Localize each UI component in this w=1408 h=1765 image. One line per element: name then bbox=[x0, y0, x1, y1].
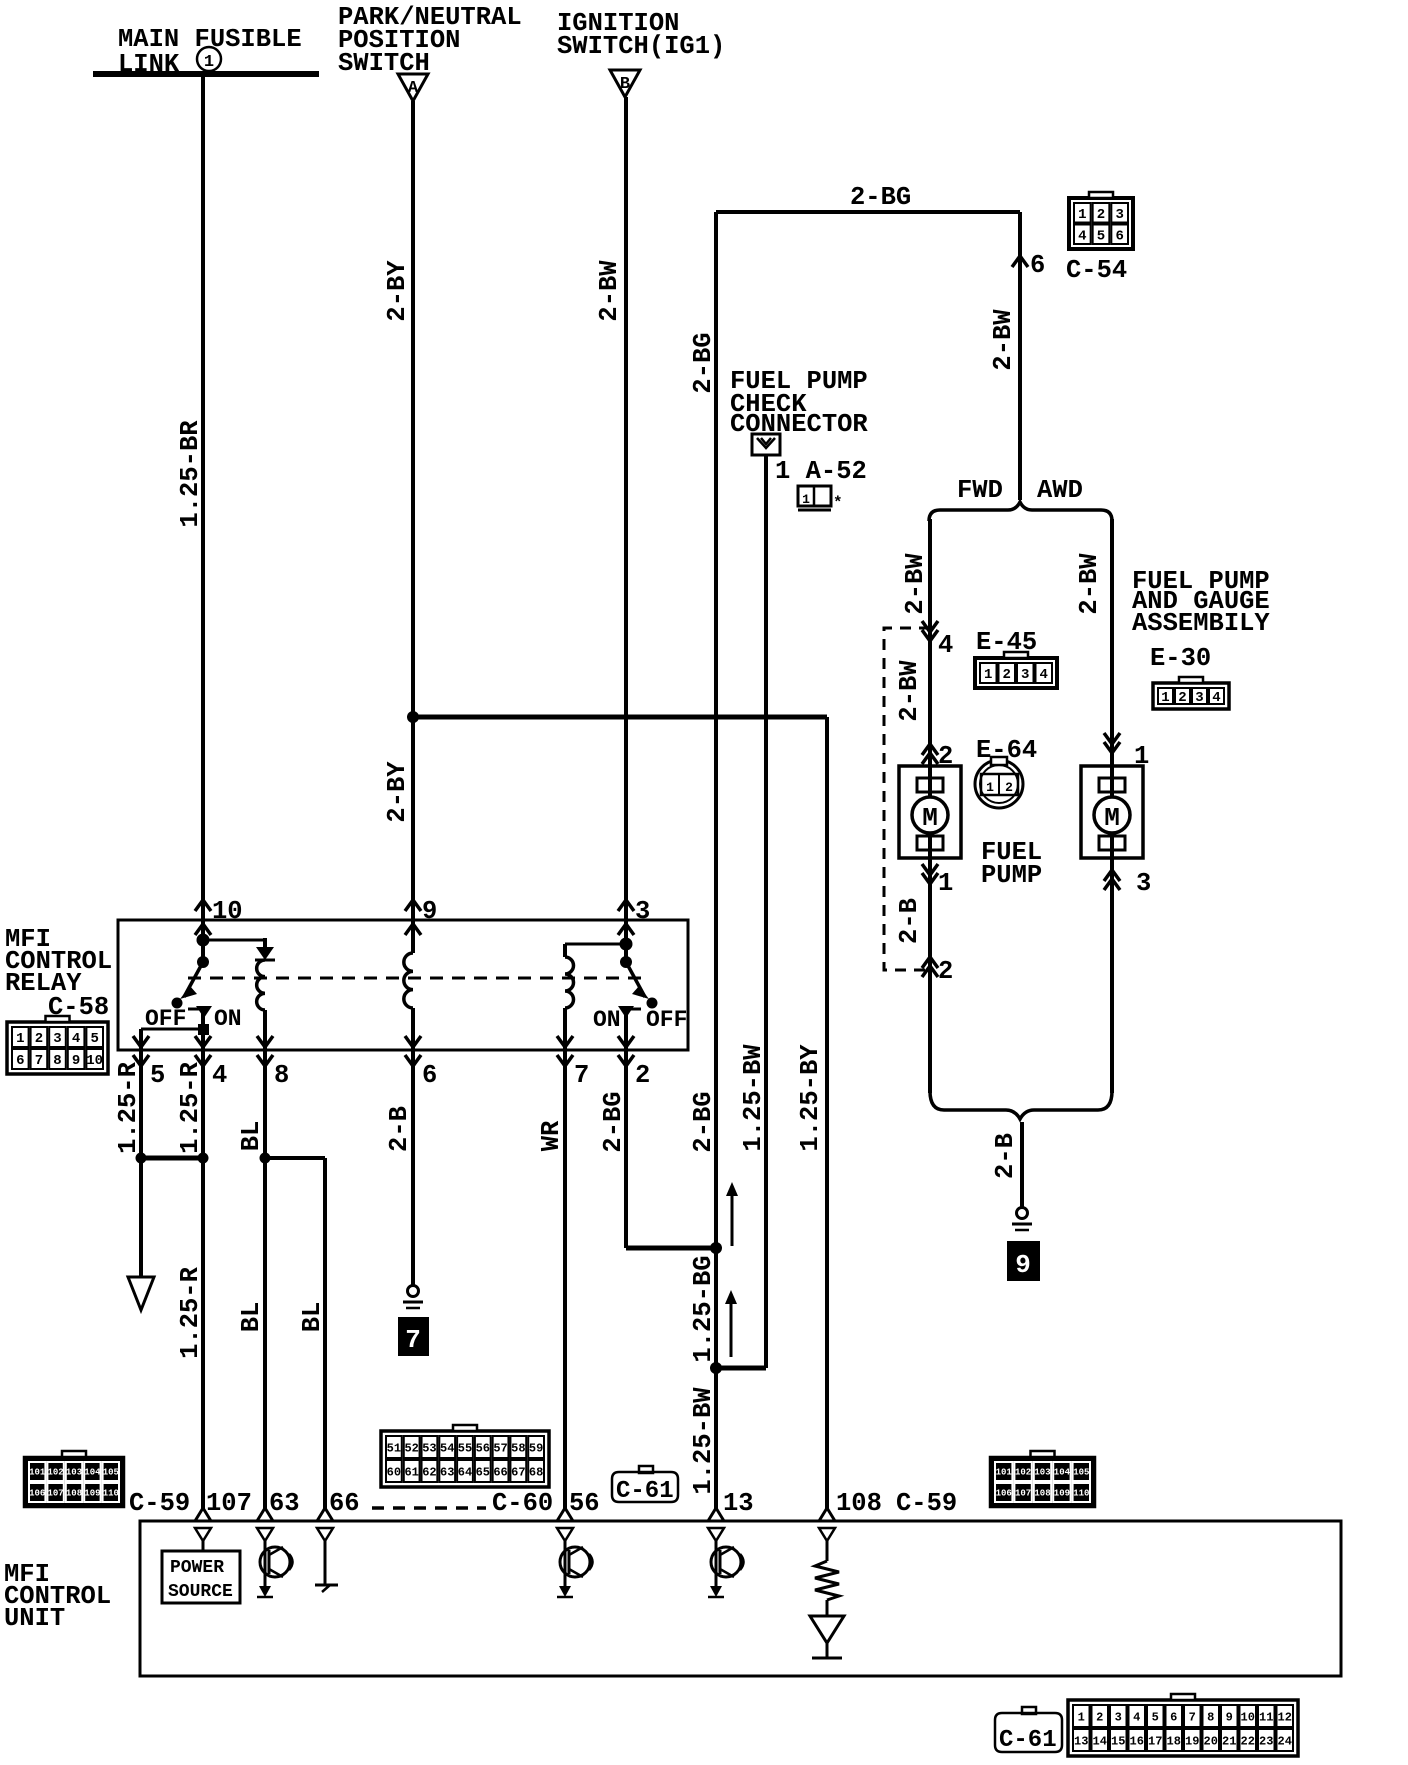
svg-text:105: 105 bbox=[1073, 1468, 1089, 1478]
svg-text:10: 10 bbox=[212, 897, 243, 926]
svg-text:2: 2 bbox=[635, 1061, 650, 1090]
svg-text:PUMP: PUMP bbox=[981, 861, 1042, 890]
svg-text:C-54: C-54 bbox=[1066, 256, 1127, 285]
svg-text:102: 102 bbox=[1015, 1468, 1031, 1478]
svg-text:12: 12 bbox=[1278, 1710, 1292, 1724]
svg-text:1: 1 bbox=[802, 492, 810, 507]
svg-text:2-BY: 2-BY bbox=[383, 260, 412, 322]
svg-text:108: 108 bbox=[836, 1489, 882, 1518]
svg-text:4: 4 bbox=[938, 631, 953, 660]
svg-text:6: 6 bbox=[1170, 1710, 1177, 1724]
svg-text:3: 3 bbox=[1195, 690, 1203, 706]
svg-text:1.25-R: 1.25-R bbox=[114, 1061, 143, 1154]
svg-text:53: 53 bbox=[422, 1441, 436, 1455]
svg-text:1.25-BW: 1.25-BW bbox=[739, 1044, 768, 1152]
svg-text:103: 103 bbox=[1034, 1468, 1050, 1478]
svg-text:23: 23 bbox=[1259, 1734, 1273, 1748]
svg-text:ASSEMBILY: ASSEMBILY bbox=[1132, 609, 1270, 638]
svg-text:2: 2 bbox=[1005, 780, 1013, 795]
svg-text:9: 9 bbox=[1015, 1250, 1031, 1280]
svg-text:7: 7 bbox=[574, 1061, 589, 1090]
svg-text:ON: ON bbox=[593, 1007, 621, 1033]
svg-text:57: 57 bbox=[493, 1441, 507, 1455]
svg-text:67: 67 bbox=[511, 1465, 525, 1479]
svg-text:C-59: C-59 bbox=[129, 1489, 190, 1518]
svg-text:66: 66 bbox=[329, 1489, 360, 1518]
svg-text:1: 1 bbox=[1078, 207, 1086, 223]
svg-text:2: 2 bbox=[1003, 667, 1011, 683]
svg-text:5: 5 bbox=[1097, 228, 1105, 244]
svg-text:3: 3 bbox=[635, 897, 650, 926]
svg-text:BL: BL bbox=[298, 1302, 327, 1333]
svg-text:101: 101 bbox=[29, 1468, 46, 1478]
svg-text:64: 64 bbox=[458, 1465, 472, 1479]
svg-text:1: 1 bbox=[16, 1031, 24, 1047]
svg-text:20: 20 bbox=[1204, 1734, 1218, 1748]
svg-text:3: 3 bbox=[1021, 667, 1029, 683]
svg-text:2-B: 2-B bbox=[991, 1133, 1020, 1179]
svg-text:5: 5 bbox=[150, 1061, 165, 1090]
svg-text:2-B: 2-B bbox=[385, 1106, 414, 1152]
svg-text:7: 7 bbox=[1189, 1710, 1196, 1724]
svg-text:6: 6 bbox=[422, 1061, 437, 1090]
svg-text:C-60: C-60 bbox=[492, 1489, 553, 1518]
svg-text:1.25-BR: 1.25-BR bbox=[176, 420, 205, 528]
svg-text:62: 62 bbox=[422, 1465, 436, 1479]
svg-text:2-BW: 2-BW bbox=[895, 660, 924, 722]
svg-text:2-BW: 2-BW bbox=[989, 309, 1018, 371]
svg-text:ON: ON bbox=[214, 1006, 242, 1032]
svg-text:58: 58 bbox=[511, 1441, 525, 1455]
svg-text:2-BG: 2-BG bbox=[689, 332, 718, 393]
svg-text:108: 108 bbox=[66, 1489, 82, 1499]
svg-text:6: 6 bbox=[16, 1053, 24, 1069]
svg-text:60: 60 bbox=[387, 1465, 401, 1479]
svg-text:21: 21 bbox=[1222, 1734, 1236, 1748]
svg-text:B: B bbox=[620, 75, 630, 94]
svg-text:55: 55 bbox=[458, 1441, 472, 1455]
svg-text:BL: BL bbox=[237, 1302, 266, 1333]
svg-text:3: 3 bbox=[1136, 869, 1151, 898]
svg-text:5: 5 bbox=[1152, 1710, 1159, 1724]
svg-text:2-BG: 2-BG bbox=[689, 1091, 718, 1152]
svg-text:4: 4 bbox=[1212, 690, 1220, 706]
svg-text:2-BG: 2-BG bbox=[599, 1091, 628, 1152]
svg-text:13: 13 bbox=[1074, 1734, 1088, 1748]
svg-text:106: 106 bbox=[996, 1489, 1012, 1499]
svg-text:18: 18 bbox=[1167, 1734, 1181, 1748]
svg-text:1: 1 bbox=[1161, 690, 1169, 706]
svg-text:68: 68 bbox=[529, 1465, 543, 1479]
svg-text:6: 6 bbox=[1115, 228, 1123, 244]
svg-text:2-BW: 2-BW bbox=[595, 260, 624, 322]
svg-text:1.25-BY: 1.25-BY bbox=[796, 1044, 825, 1152]
svg-text:4: 4 bbox=[212, 1061, 227, 1090]
svg-text:E-30: E-30 bbox=[1150, 644, 1211, 673]
svg-text:POWER: POWER bbox=[170, 1558, 224, 1578]
svg-text:101: 101 bbox=[996, 1468, 1013, 1478]
svg-text:14: 14 bbox=[1093, 1734, 1107, 1748]
svg-text:C-61: C-61 bbox=[999, 1727, 1057, 1754]
svg-text:105: 105 bbox=[103, 1468, 119, 1478]
svg-text:FWD: FWD bbox=[957, 476, 1003, 505]
svg-text:8: 8 bbox=[53, 1053, 61, 1069]
svg-text:M: M bbox=[1104, 803, 1120, 833]
svg-text:3: 3 bbox=[53, 1031, 61, 1047]
svg-text:13: 13 bbox=[723, 1489, 754, 1518]
svg-text:104: 104 bbox=[84, 1468, 101, 1478]
svg-text:2-BY: 2-BY bbox=[383, 761, 412, 823]
svg-text:2: 2 bbox=[938, 957, 953, 986]
svg-text:51: 51 bbox=[387, 1441, 401, 1455]
svg-text:10: 10 bbox=[1241, 1710, 1255, 1724]
svg-text:3: 3 bbox=[1115, 207, 1123, 223]
svg-text:19: 19 bbox=[1185, 1734, 1199, 1748]
svg-text:108: 108 bbox=[1034, 1489, 1050, 1499]
svg-text:56: 56 bbox=[476, 1441, 490, 1455]
svg-text:104: 104 bbox=[1054, 1468, 1071, 1478]
svg-text:107: 107 bbox=[1015, 1489, 1031, 1499]
svg-text:SOURCE: SOURCE bbox=[168, 1582, 233, 1602]
svg-text:109: 109 bbox=[1054, 1489, 1070, 1499]
svg-text:9: 9 bbox=[72, 1053, 80, 1069]
svg-text:4: 4 bbox=[1133, 1710, 1140, 1724]
svg-text:1: 1 bbox=[938, 869, 953, 898]
svg-text:15: 15 bbox=[1111, 1734, 1125, 1748]
svg-text:56: 56 bbox=[569, 1489, 600, 1518]
svg-text:11: 11 bbox=[1259, 1710, 1273, 1724]
svg-text:1.25-BG: 1.25-BG bbox=[689, 1255, 718, 1362]
svg-text:BL: BL bbox=[237, 1121, 266, 1152]
svg-text:4: 4 bbox=[1078, 228, 1086, 244]
svg-text:16: 16 bbox=[1130, 1734, 1144, 1748]
svg-text:2-BG: 2-BG bbox=[850, 183, 911, 212]
svg-text:M: M bbox=[922, 803, 938, 833]
svg-text:8: 8 bbox=[274, 1061, 289, 1090]
svg-text:107: 107 bbox=[47, 1489, 63, 1499]
svg-text:66: 66 bbox=[493, 1465, 507, 1479]
svg-text:UNIT: UNIT bbox=[4, 1604, 65, 1633]
svg-text:2: 2 bbox=[1178, 690, 1186, 706]
svg-text:54: 54 bbox=[440, 1441, 454, 1455]
svg-text:1: 1 bbox=[204, 53, 214, 72]
svg-text:1: 1 bbox=[986, 780, 994, 795]
svg-text:2-BW: 2-BW bbox=[901, 553, 930, 615]
svg-text:WR: WR bbox=[537, 1120, 566, 1151]
svg-text:109: 109 bbox=[84, 1489, 100, 1499]
svg-text:110: 110 bbox=[103, 1489, 119, 1499]
svg-text:24: 24 bbox=[1278, 1734, 1292, 1748]
svg-text:7: 7 bbox=[405, 1325, 421, 1355]
svg-text:9: 9 bbox=[1226, 1710, 1233, 1724]
svg-text:1 A-52: 1 A-52 bbox=[775, 457, 867, 486]
svg-text:3: 3 bbox=[1115, 1710, 1122, 1724]
svg-text:106: 106 bbox=[29, 1489, 45, 1499]
svg-text:110: 110 bbox=[1073, 1489, 1089, 1499]
svg-text:2: 2 bbox=[1096, 1710, 1103, 1724]
svg-text:2: 2 bbox=[35, 1031, 43, 1047]
svg-text:9: 9 bbox=[422, 897, 437, 926]
svg-text:C-59: C-59 bbox=[896, 1489, 957, 1518]
svg-text:102: 102 bbox=[47, 1468, 63, 1478]
svg-text:6: 6 bbox=[1030, 251, 1045, 280]
svg-text:63: 63 bbox=[440, 1465, 454, 1479]
svg-text:59: 59 bbox=[529, 1441, 543, 1455]
svg-text:1: 1 bbox=[984, 667, 992, 683]
svg-text:*: * bbox=[833, 494, 843, 512]
svg-text:1.25-BW: 1.25-BW bbox=[689, 1387, 718, 1495]
svg-text:61: 61 bbox=[404, 1465, 418, 1479]
svg-text:8: 8 bbox=[1207, 1710, 1214, 1724]
svg-text:107: 107 bbox=[206, 1489, 252, 1518]
svg-text:2: 2 bbox=[1097, 207, 1105, 223]
svg-text:LINK: LINK bbox=[118, 50, 180, 79]
svg-text:OFF: OFF bbox=[646, 1007, 687, 1033]
svg-text:AWD: AWD bbox=[1037, 476, 1083, 505]
svg-text:1: 1 bbox=[1078, 1710, 1085, 1724]
svg-text:SWITCH(IG1): SWITCH(IG1) bbox=[557, 32, 725, 61]
svg-text:17: 17 bbox=[1148, 1734, 1162, 1748]
svg-text:5: 5 bbox=[90, 1031, 98, 1047]
svg-text:2-B: 2-B bbox=[895, 898, 924, 944]
svg-text:2-BW: 2-BW bbox=[1075, 553, 1104, 615]
svg-text:7: 7 bbox=[35, 1053, 43, 1069]
svg-text:22: 22 bbox=[1241, 1734, 1255, 1748]
svg-text:1.25-R: 1.25-R bbox=[176, 1061, 205, 1154]
svg-text:63: 63 bbox=[269, 1489, 300, 1518]
svg-text:A: A bbox=[408, 79, 419, 98]
svg-text:65: 65 bbox=[476, 1465, 490, 1479]
svg-text:C-61: C-61 bbox=[616, 1478, 674, 1505]
svg-text:10: 10 bbox=[86, 1053, 103, 1069]
svg-text:1.25-R: 1.25-R bbox=[176, 1266, 205, 1359]
svg-text:4: 4 bbox=[72, 1031, 80, 1047]
svg-text:52: 52 bbox=[404, 1441, 418, 1455]
svg-text:103: 103 bbox=[66, 1468, 82, 1478]
svg-text:4: 4 bbox=[1040, 667, 1048, 683]
